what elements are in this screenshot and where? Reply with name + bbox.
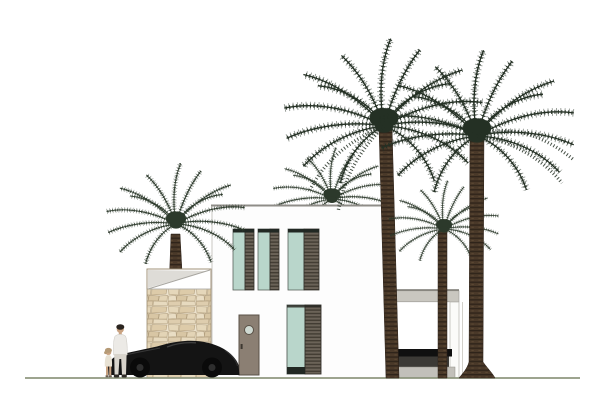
adult-shoe [114,375,119,378]
child-ponytail [104,351,107,354]
window-lintel [288,229,319,233]
house [211,205,392,378]
window-louver [270,229,279,290]
window-head [287,305,321,308]
ground-window [287,305,321,374]
adult-shirt [113,334,127,355]
child-shoe [109,375,112,377]
window-lintel [258,229,279,233]
child-leg [106,367,108,376]
child-shoe [106,375,109,377]
palm-trunk [438,230,447,378]
pavilion-roof-slab [388,291,459,302]
door-handle [241,344,243,349]
car-hub-front [137,364,144,371]
elevation-canvas [0,0,607,420]
window-sill [287,367,305,374]
window-glass [287,305,305,374]
upper-window-3 [288,229,319,290]
door-porthole [245,326,254,335]
window-louver [305,305,321,374]
pavilion-post [450,302,459,378]
upper-window-2 [258,229,279,290]
child-leg [109,367,111,376]
car-hub-rear [209,364,216,371]
window-louver [304,229,319,290]
window-louver [245,229,254,290]
elevation-drawing [0,0,607,420]
window-glass [258,229,270,290]
adult-hair [116,324,124,330]
upper-window-1 [233,229,254,290]
adult-shoe [122,375,127,378]
child-top [105,355,112,367]
window-glass [288,229,304,290]
entry-door [239,315,259,375]
window-glass [233,229,245,290]
